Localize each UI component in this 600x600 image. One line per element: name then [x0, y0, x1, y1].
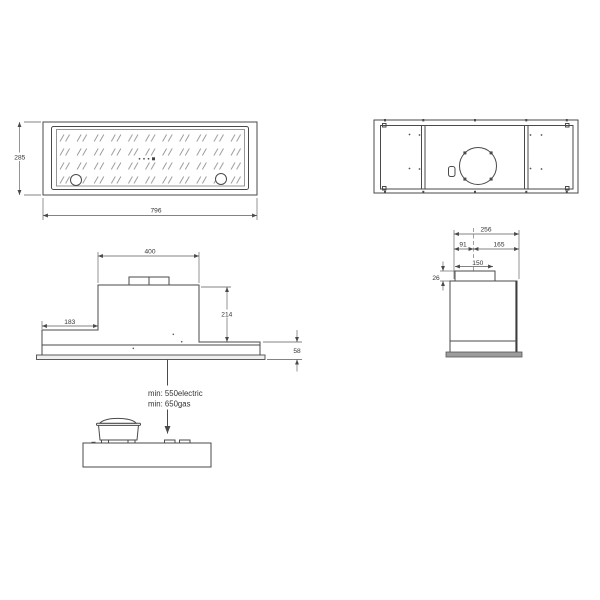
right-light-icon [216, 174, 227, 185]
side-view: 256 91 165 150 26 [432, 226, 522, 357]
front-width-label: 796 [150, 208, 161, 215]
front-height-dimension: 285 [11, 122, 41, 195]
front-view: 285 796 [11, 122, 257, 220]
pot-icon [97, 418, 141, 443]
flange-width-label: 183 [64, 319, 75, 326]
rivet-dots [133, 334, 183, 350]
duct-position-dimensions: 91 165 [454, 242, 519, 249]
side-base-plate [446, 352, 522, 357]
flange-width-dimension: 183 [42, 318, 98, 329]
front-height-label: 285 [14, 155, 25, 162]
clearance-gas-label: min: 650gas [148, 400, 191, 409]
duct-front-offset-label: 91 [459, 242, 467, 249]
lower-height-dimension: 58 [263, 330, 304, 372]
collar-height-label: 26 [432, 275, 440, 282]
left-light-icon [71, 175, 82, 186]
elevation-view: 400 214 183 58 [37, 248, 305, 371]
technical-drawing-page: 285 796 [0, 0, 600, 600]
body-height-dimension: 214 [201, 287, 235, 342]
drawing-svg: 285 796 [0, 0, 600, 600]
elevation-ceiling-plate [37, 355, 266, 360]
lower-height-label: 58 [293, 348, 301, 355]
top-width-label: 400 [144, 248, 155, 255]
side-body [450, 281, 517, 353]
duct-diameter-label: 150 [472, 260, 483, 267]
side-duct-collar [455, 271, 495, 281]
duct-diameter-dimension: 150 [455, 259, 493, 267]
body-height-label: 214 [221, 311, 232, 318]
front-width-dimension: 796 [43, 198, 257, 220]
top-view [374, 119, 578, 193]
cooktop-clearance-view: min: 550electric min: 650gas [83, 360, 211, 468]
clearance-electric-label: min: 550electric [148, 389, 203, 398]
side-depth-label: 256 [480, 226, 491, 233]
cooktop-counter [83, 443, 211, 467]
duct-rear-offset-label: 165 [493, 242, 504, 249]
